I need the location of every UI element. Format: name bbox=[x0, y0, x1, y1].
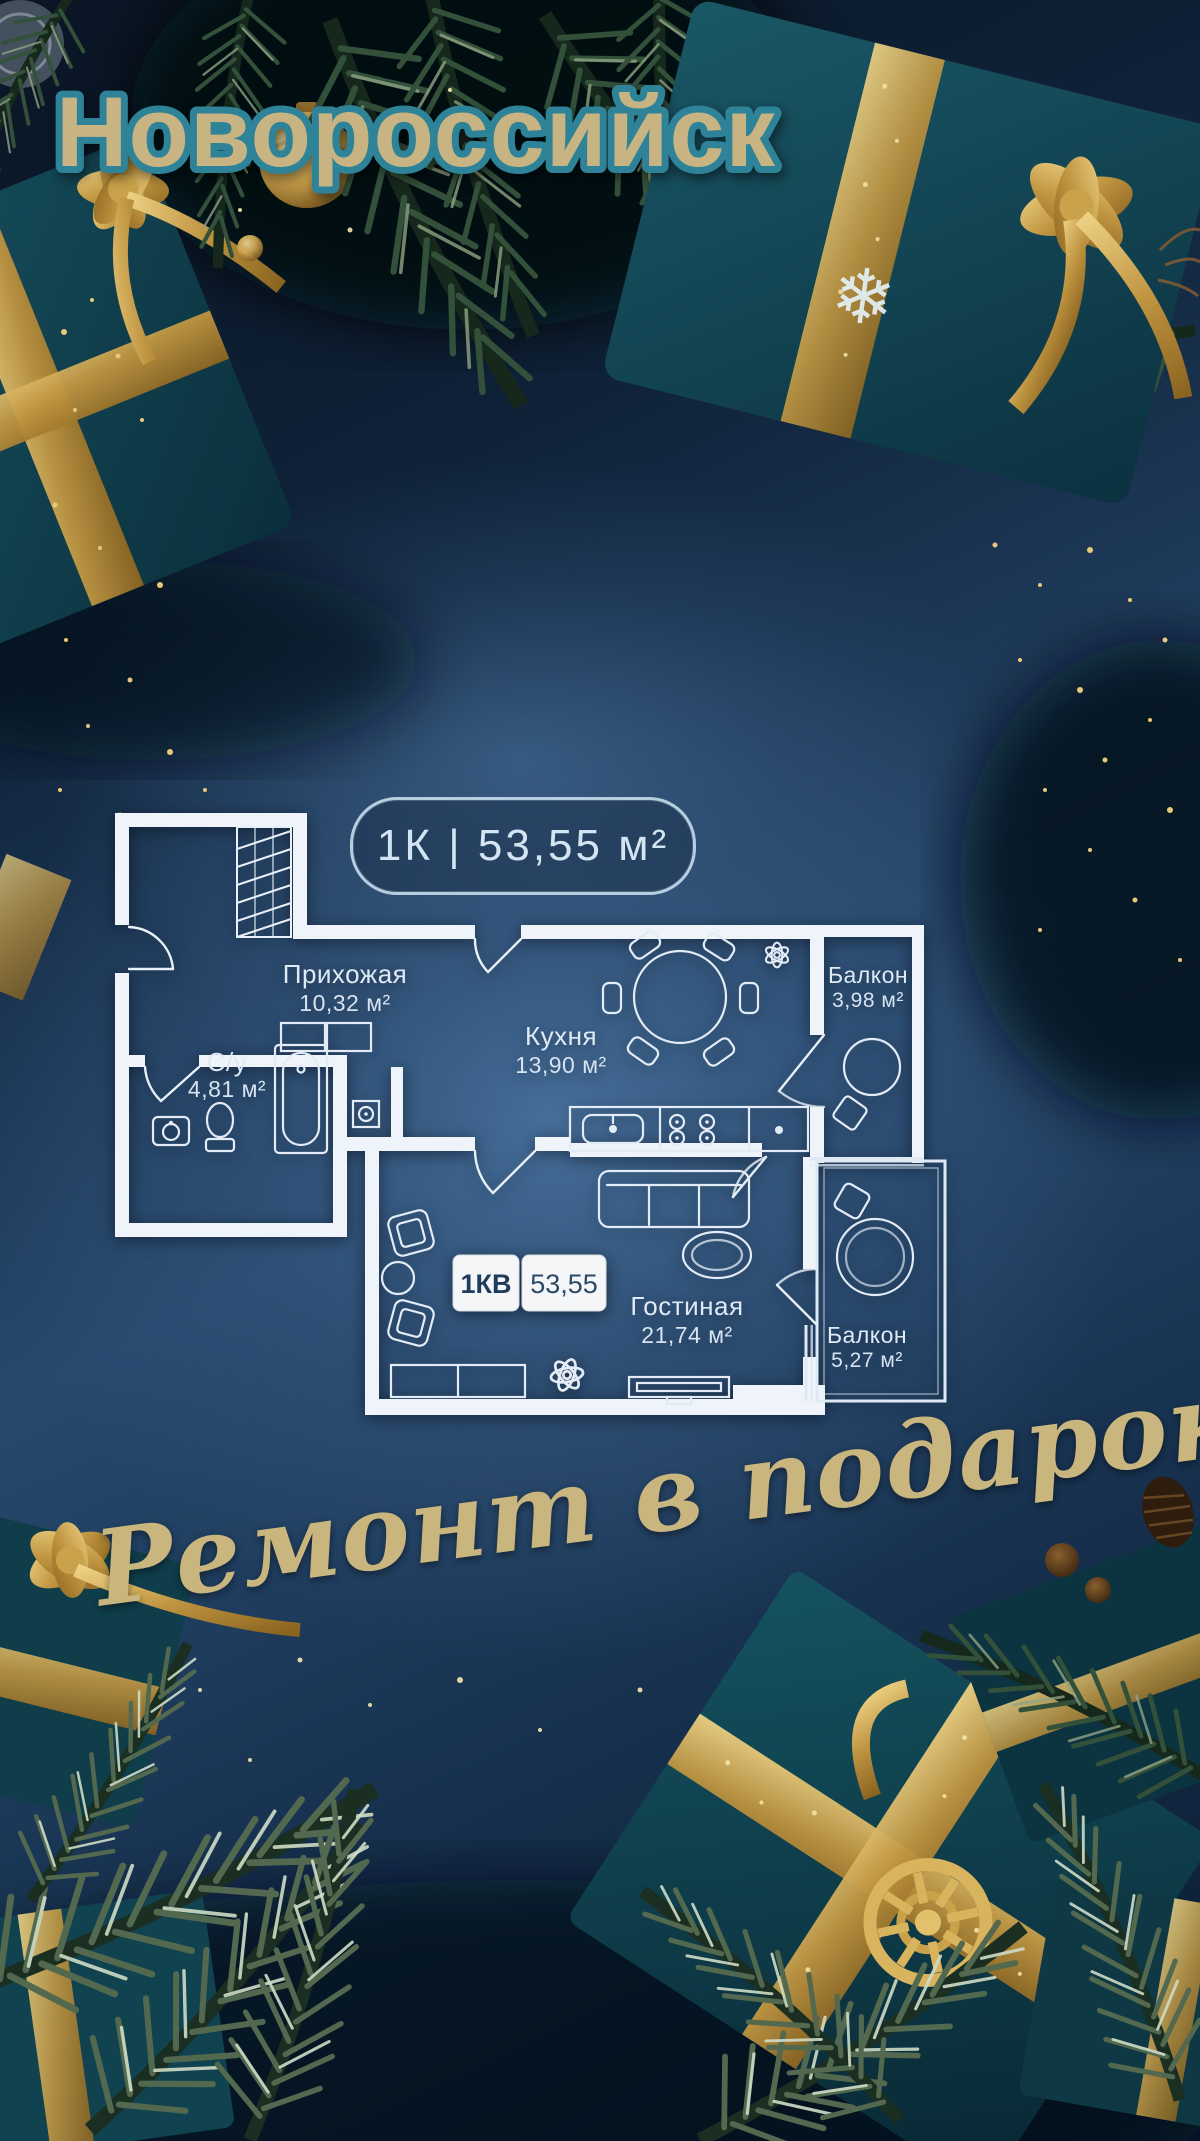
room-label-bathroom: С/у bbox=[207, 1047, 248, 1077]
walnut bbox=[1085, 1577, 1111, 1603]
balcony-table-icon bbox=[837, 1219, 913, 1295]
toilet-icon bbox=[206, 1103, 234, 1151]
plan-header-badge-label: 1К | 53,55 м² bbox=[377, 821, 669, 871]
title-banner: Новороссийск bbox=[0, 28, 1200, 218]
cabinet-icon bbox=[391, 1365, 525, 1397]
plant-icon bbox=[545, 1354, 589, 1397]
hallway-cabinet-icon bbox=[281, 1023, 371, 1051]
plan-header-badge: 1К | 53,55 м² bbox=[350, 797, 696, 895]
room-label-balcony-top: Балкон bbox=[828, 962, 908, 988]
room-area-balcony-top: 3,98 м² bbox=[832, 989, 904, 1012]
unit-badge-area: 53,55 bbox=[530, 1269, 598, 1299]
promo-poster: ❄ bbox=[0, 0, 1200, 2141]
walnut bbox=[1045, 1543, 1079, 1577]
room-label-kitchen: Кухня bbox=[525, 1021, 597, 1051]
balcony-chair-icon bbox=[832, 1095, 868, 1131]
snowflake-icon: ❄ bbox=[826, 251, 901, 344]
balcony-chair-icon bbox=[833, 1182, 871, 1220]
room-area-hallway: 10,32 м² bbox=[299, 990, 390, 1016]
stove-icon bbox=[670, 1115, 714, 1145]
unit-badge-type: 1КВ bbox=[461, 1269, 512, 1299]
room-area-balcony-bottom: 5,27 м² bbox=[831, 1349, 903, 1372]
page-title: Новороссийск bbox=[56, 76, 776, 187]
room-area-living: 21,74 м² bbox=[641, 1322, 732, 1348]
rug-icon bbox=[683, 1232, 751, 1278]
balcony-table-icon bbox=[844, 1039, 900, 1095]
dining-table-icon bbox=[603, 929, 758, 1068]
room-label-balcony-bottom: Балкон bbox=[827, 1322, 907, 1348]
room-area-kitchen: 13,90 м² bbox=[515, 1052, 606, 1078]
sink-icon bbox=[153, 1117, 189, 1145]
counter-dot bbox=[775, 1126, 783, 1134]
vent-shaft-icon bbox=[353, 1101, 379, 1127]
ornament-bead bbox=[237, 235, 263, 261]
kitchen-sink-icon bbox=[583, 1115, 643, 1143]
unit-badge: 1КВ 53,55 bbox=[453, 1255, 606, 1311]
room-area-bathroom: 4,81 м² bbox=[188, 1076, 266, 1102]
armchair-icon bbox=[387, 1299, 436, 1348]
stairs-hatch bbox=[237, 827, 291, 937]
floor-plan: Прихожая 10,32 м² С/у 4,81 м² Кухня 13,9… bbox=[115, 805, 965, 1445]
room-label-living: Гостиная bbox=[630, 1291, 743, 1321]
armchair-icon bbox=[387, 1209, 436, 1258]
sofa-icon bbox=[599, 1171, 749, 1227]
plant-icon bbox=[764, 943, 791, 968]
side-table-icon bbox=[382, 1262, 414, 1294]
room-label-hallway: Прихожая bbox=[283, 959, 407, 989]
